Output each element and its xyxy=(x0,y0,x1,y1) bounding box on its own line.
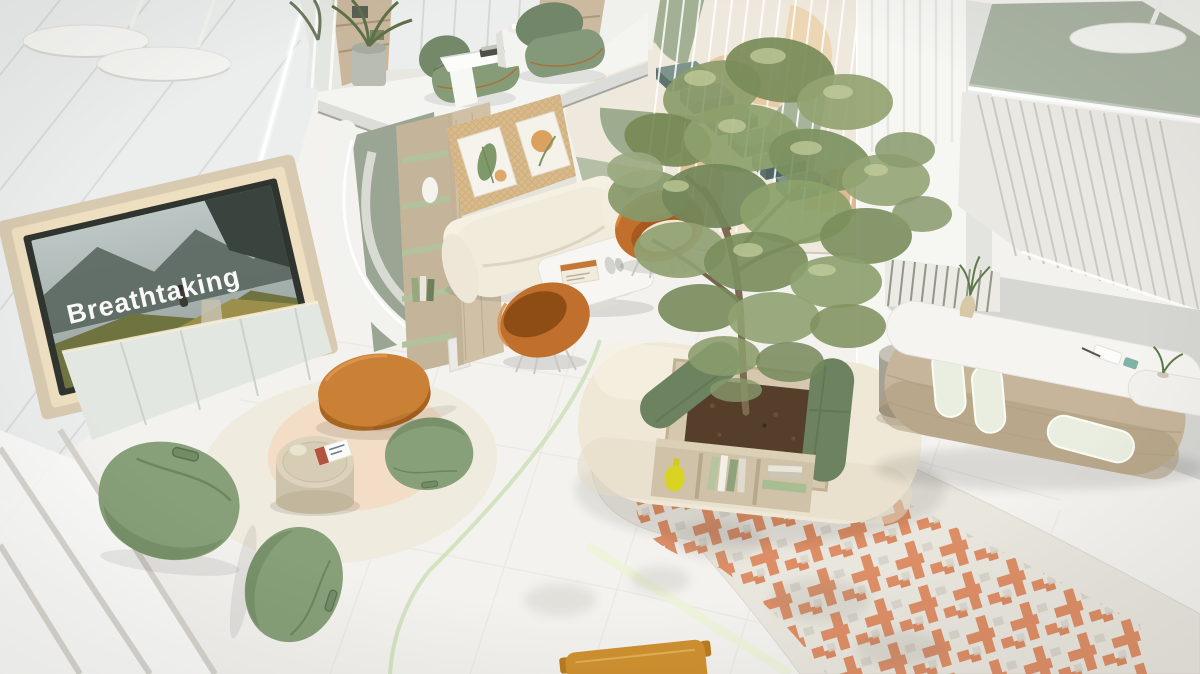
interior-render: Breathtaking xyxy=(0,0,1200,674)
scene-render: Breathtaking xyxy=(0,0,1200,674)
vignette xyxy=(0,0,1200,674)
